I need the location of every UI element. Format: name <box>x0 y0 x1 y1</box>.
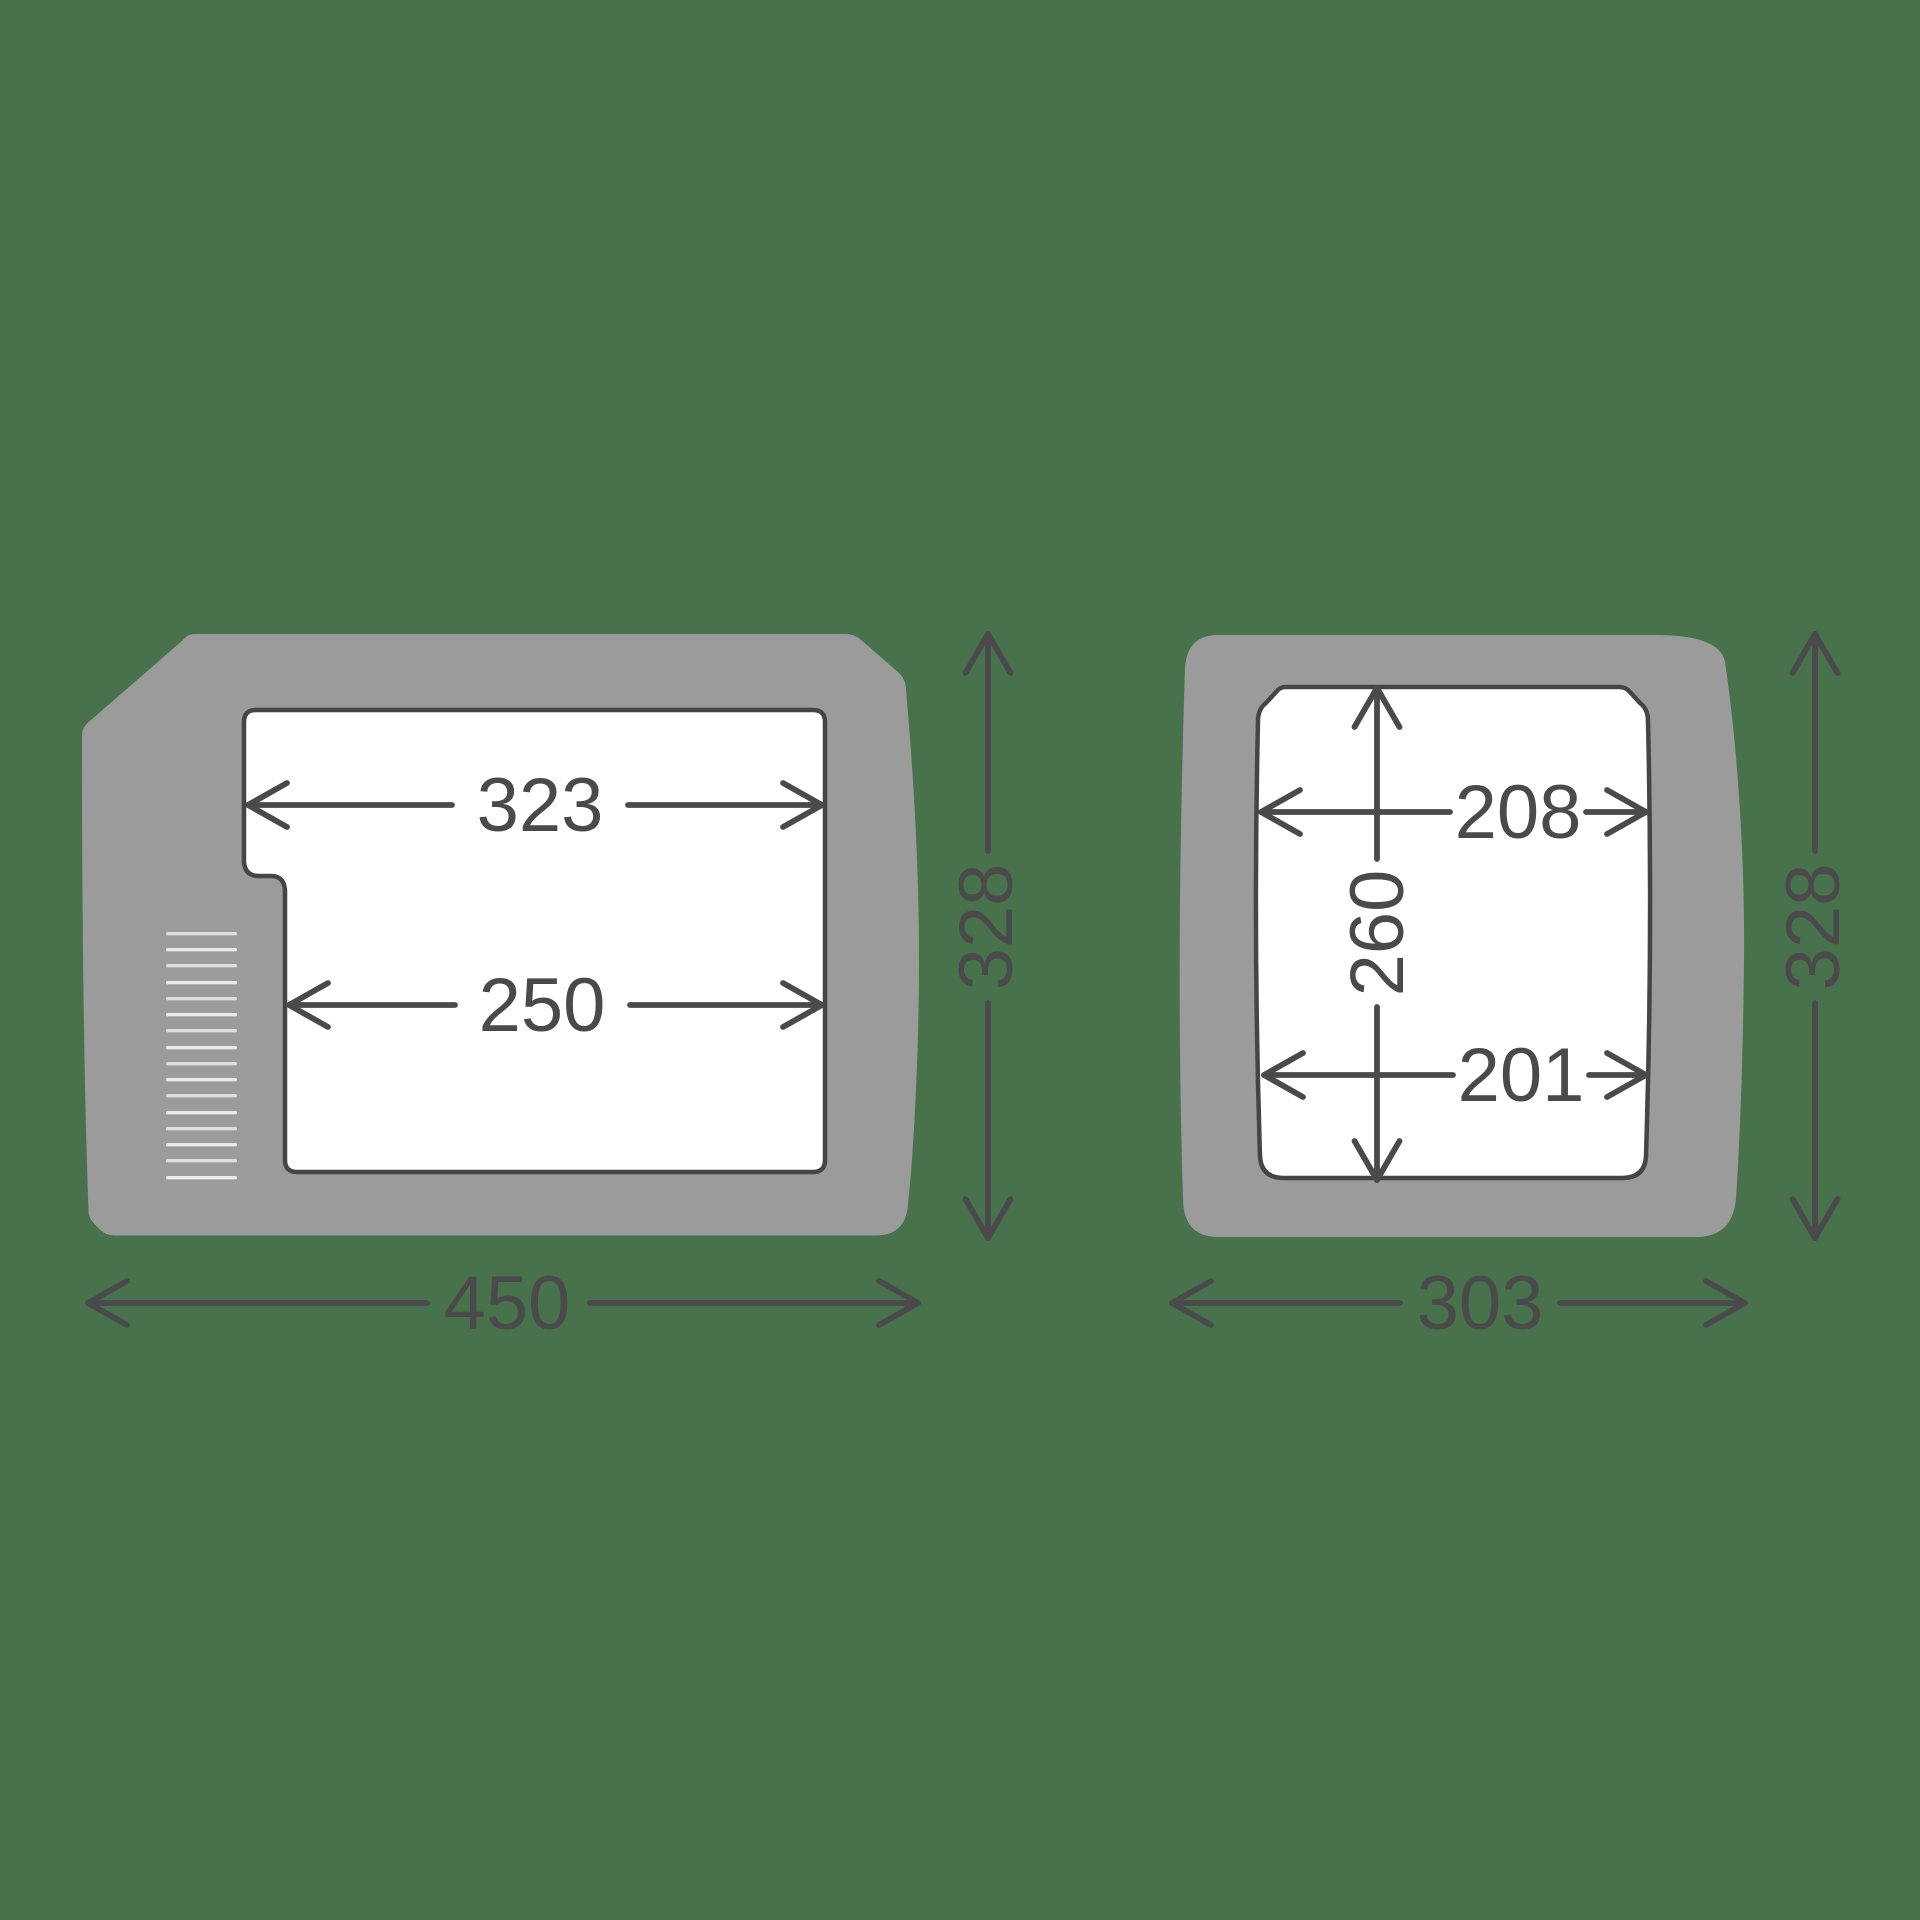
svg-text:208: 208 <box>1455 770 1582 855</box>
svg-text:328: 328 <box>1771 864 1856 991</box>
svg-text:260: 260 <box>1335 870 1420 997</box>
svg-text:328: 328 <box>944 864 1029 991</box>
svg-text:303: 303 <box>1417 1261 1544 1346</box>
svg-text:450: 450 <box>444 1261 571 1346</box>
svg-text:201: 201 <box>1458 1033 1585 1118</box>
svg-text:323: 323 <box>477 763 604 848</box>
svg-text:250: 250 <box>479 963 606 1048</box>
